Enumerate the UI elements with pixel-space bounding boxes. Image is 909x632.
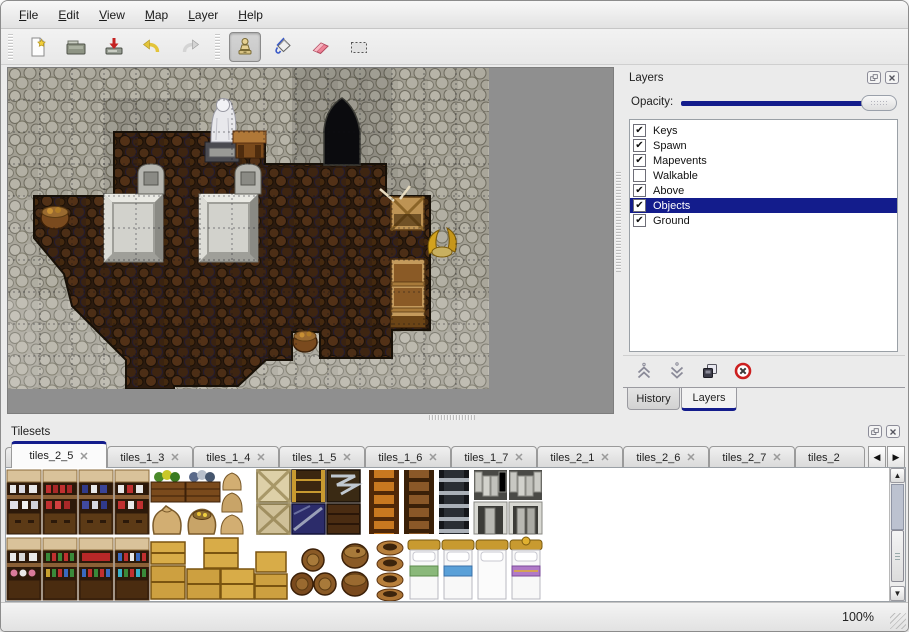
tile-shelf-red-bottles[interactable] [43, 470, 77, 534]
tileset-tab-tiles_1_6[interactable]: tiles_1_6 ✕ [365, 446, 451, 468]
layer-checkbox[interactable]: ✔ [633, 124, 646, 137]
app-window: File Edit View Map Layer Help [0, 0, 909, 632]
arrow-left-icon: ◀ [874, 452, 881, 463]
tile-ladder-orange[interactable] [369, 470, 399, 534]
tile-pot-stack[interactable] [377, 541, 403, 601]
layer-row-objects[interactable]: ✔ Objects [630, 198, 897, 213]
delete-layer-button[interactable] [731, 359, 755, 383]
tab-close-icon[interactable]: ✕ [514, 451, 523, 464]
tile-ladder-iron[interactable] [439, 470, 469, 534]
tab-label: tiles_1_4 [206, 452, 250, 464]
tileset-render [6, 468, 876, 601]
tile-crate-navy[interactable] [292, 504, 325, 534]
menu-view[interactable]: View [89, 3, 135, 27]
save-icon [102, 35, 126, 59]
tile-sack-open-gold[interactable] [188, 509, 215, 534]
tile-crate-dark[interactable] [327, 504, 360, 534]
layer-row-mapevents[interactable]: ✔ Mapevents [630, 153, 897, 168]
tile-crate-dark-gold[interactable] [292, 470, 325, 502]
tab-label: Layers [692, 392, 725, 404]
layer-name: Above [653, 185, 684, 197]
tileset-scrollbar[interactable]: ▲ ▼ [889, 468, 905, 601]
close-panel-button[interactable] [886, 425, 900, 438]
undo-arrow-icon [140, 35, 164, 59]
layer-row-above[interactable]: ✔ Above [630, 183, 897, 198]
layer-actions [623, 355, 905, 385]
basket-left [41, 207, 69, 230]
layer-checkbox[interactable]: ✔ [633, 154, 646, 167]
eraser-icon [309, 35, 333, 59]
float-icon [869, 73, 879, 83]
tile-sack-large[interactable] [153, 506, 181, 534]
menu-bar: File Edit View Map Layer Help [1, 1, 908, 29]
tab-scroll-left-button[interactable]: ◀ [868, 446, 886, 468]
status-bar: 100% [1, 602, 908, 631]
tile-bed-purple[interactable] [510, 537, 542, 599]
opacity-label: Opacity: [631, 96, 673, 108]
tile-bed-white[interactable] [476, 540, 508, 599]
move-layer-up-button[interactable] [632, 359, 656, 383]
tab-label: tiles_1_6 [378, 452, 422, 464]
splitter-grip [429, 415, 475, 420]
fill-tool-button[interactable] [267, 32, 299, 62]
tile-shelf-jugs[interactable] [115, 470, 149, 534]
layer-checkbox[interactable]: ✔ [633, 184, 646, 197]
tile-shelf-blue-jars[interactable] [79, 470, 113, 534]
tab-close-icon[interactable]: ✕ [772, 451, 781, 464]
selection-rect-icon [347, 35, 371, 59]
open-folder-icon [64, 35, 88, 59]
tile-planter-green[interactable] [151, 470, 185, 502]
zoom-level: 100% [842, 610, 874, 624]
tab-layers[interactable]: Layers [681, 388, 737, 411]
tile-crate-x-light-2[interactable] [257, 504, 290, 534]
tab-close-icon[interactable]: ✕ [686, 451, 695, 464]
tile-crates-yellow[interactable] [151, 538, 287, 599]
layer-row-spawn[interactable]: ✔ Spawn [630, 138, 897, 153]
tab-label: tiles_2_6 [636, 452, 680, 464]
tab-scroll-right-button[interactable]: ▶ [887, 446, 905, 468]
layer-row-ground[interactable]: ✔ Ground [630, 213, 897, 228]
tile-barrel-pile[interactable] [291, 549, 336, 595]
layer-checkbox[interactable]: ✔ [633, 214, 646, 227]
menu-help[interactable]: Help [228, 3, 273, 27]
tab-label: tiles_1_5 [292, 452, 336, 464]
layer-checkbox[interactable] [633, 169, 646, 182]
tile-bed-green[interactable] [408, 540, 440, 599]
new-file-icon [26, 35, 50, 59]
scroll-up-button[interactable]: ▲ [890, 468, 905, 483]
eraser-tool-button[interactable] [305, 32, 337, 62]
tileset-tab-tiles_2_1[interactable]: tiles_2_1 ✕ [537, 446, 623, 468]
redo-arrow-icon [178, 35, 202, 59]
tab-close-icon[interactable]: ✕ [342, 451, 351, 464]
layer-name: Ground [653, 215, 690, 227]
tileset-tab-tiles_1_5[interactable]: tiles_1_5 ✕ [279, 446, 365, 468]
layer-row-walkable[interactable]: Walkable [630, 168, 897, 183]
tile-barrels-stacked[interactable] [342, 544, 368, 596]
opacity-slider[interactable] [681, 93, 897, 113]
gravestone-right [235, 164, 261, 194]
layer-checkbox[interactable]: ✔ [633, 199, 646, 212]
tile-planter-blue[interactable] [186, 470, 220, 502]
copy-icon [700, 361, 720, 381]
tilesets-panel: Tilesets tiles_2_5 ✕ tiles_1_3 [5, 421, 906, 603]
horizontal-splitter[interactable] [5, 414, 906, 421]
tileset-tab-tiles_2_7[interactable]: tiles_2_7 ✕ [709, 446, 795, 468]
layers-panel-title: Layers [629, 72, 664, 84]
tileset-tab-tiles_2_6[interactable]: tiles_2_6 ✕ [623, 446, 709, 468]
tile-shelf-red-rows[interactable] [79, 538, 113, 600]
vertical-splitter[interactable] [614, 67, 623, 414]
layer-name: Walkable [653, 170, 698, 182]
tileset-tab-tiles_1_4[interactable]: tiles_1_4 ✕ [193, 446, 279, 468]
tile-shelf-green-red[interactable] [43, 538, 77, 600]
duplicate-layer-button[interactable] [698, 359, 722, 383]
tab-label: tiles_2 [808, 452, 840, 464]
tab-close-icon[interactable]: ✕ [428, 451, 437, 464]
close-icon [888, 427, 898, 437]
tab-label: tiles_2_1 [550, 452, 594, 464]
tileset-tab-tiles_2_5[interactable]: tiles_2_5 ✕ [11, 441, 107, 468]
tab-label: tiles_2_5 [29, 450, 73, 462]
layers-panel-titlebar: Layers [623, 67, 905, 88]
wooden-table [233, 131, 266, 158]
tab-close-icon[interactable]: ✕ [170, 451, 179, 464]
tilesets-panel-titlebar: Tilesets [5, 421, 906, 442]
tile-stone-arch-1[interactable] [474, 470, 507, 534]
close-icon [887, 73, 897, 83]
layer-name: Keys [653, 125, 677, 137]
menu-map[interactable]: Map [135, 3, 178, 27]
move-layer-down-button[interactable] [665, 359, 689, 383]
stamp-tool-button[interactable] [229, 32, 261, 62]
tile-ladder-brown[interactable] [404, 470, 434, 534]
toolbar [1, 29, 908, 65]
tile-stone-arch-2[interactable] [509, 470, 542, 534]
scrollbar-track[interactable] [891, 484, 904, 530]
tile-shelf-jars-2[interactable] [7, 538, 41, 600]
layers-panel: Layers Opacity: ✔ [623, 67, 905, 414]
tab-label: History [636, 393, 670, 405]
splitter-grip [616, 172, 621, 272]
map-view [7, 67, 614, 414]
scroll-down-button[interactable]: ▼ [890, 586, 905, 601]
float-panel-button[interactable] [868, 425, 882, 438]
arrow-right-icon: ▶ [893, 452, 900, 463]
float-panel-button[interactable] [867, 71, 881, 84]
tileset-tab-truncated[interactable]: tiles_2 [795, 446, 865, 468]
opacity-row: Opacity: [629, 93, 899, 113]
tile-shelf-mixed-bottles[interactable] [115, 538, 149, 600]
select-tool-button[interactable] [343, 32, 375, 62]
layer-checkbox[interactable]: ✔ [633, 139, 646, 152]
tileset-tab-tiles_1_7[interactable]: tiles_1_7 ✕ [451, 446, 537, 468]
tileset-tab-tiles_1_3[interactable]: tiles_1_3 ✕ [107, 446, 193, 468]
tab-close-icon[interactable]: ✕ [79, 450, 88, 463]
chevron-down-icon [667, 361, 687, 381]
tab-label: tiles_1_7 [464, 452, 508, 464]
redo-button[interactable] [174, 32, 206, 62]
menu-file[interactable]: File [9, 3, 48, 27]
basket-bottom [293, 331, 317, 352]
delete-icon [733, 361, 753, 381]
menu-layer[interactable]: Layer [178, 3, 228, 27]
map-canvas[interactable] [8, 68, 489, 389]
wooden-shelf [391, 259, 425, 327]
scrollbar-thumb[interactable] [891, 530, 904, 582]
undo-button[interactable] [136, 32, 168, 62]
toolbar-drag-handle[interactable] [8, 34, 13, 60]
float-icon [870, 427, 880, 437]
tileset-view[interactable]: ▲ ▼ [5, 467, 906, 602]
layer-list[interactable]: ✔ Keys ✔ Spawn ✔ Mapevents Walkable ✔ Ab… [629, 119, 898, 352]
resize-grip[interactable] [890, 613, 906, 629]
toolbar-drag-handle-2[interactable] [215, 34, 220, 60]
tab-history[interactable]: History [627, 388, 680, 410]
tab-close-icon[interactable]: ✕ [256, 451, 265, 464]
chevron-up-icon [634, 361, 654, 381]
tile-crate-x-light[interactable] [257, 470, 290, 502]
paint-bucket-icon [271, 35, 295, 59]
tileset-tab-bar: tiles_2_5 ✕ tiles_1_3 ✕ tiles_1_4 ✕ tile… [5, 441, 906, 468]
tile-sack-stack[interactable] [221, 473, 243, 534]
layer-name: Objects [653, 200, 690, 212]
new-map-button[interactable] [22, 32, 54, 62]
tab-close-icon[interactable]: ✕ [600, 451, 609, 464]
tile-bed-blue[interactable] [442, 540, 474, 599]
layer-row-keys[interactable]: ✔ Keys [630, 123, 897, 138]
layer-name: Spawn [653, 140, 687, 152]
close-panel-button[interactable] [885, 71, 899, 84]
tile-crate-iron-brace[interactable] [327, 470, 360, 502]
gravestone-left [138, 164, 164, 194]
tab-label: tiles_1_3 [120, 452, 164, 464]
menu-edit[interactable]: Edit [48, 3, 89, 27]
map-render [8, 68, 489, 389]
layer-name: Mapevents [653, 155, 707, 167]
open-map-button[interactable] [60, 32, 92, 62]
tilesets-panel-title: Tilesets [11, 426, 50, 438]
save-map-button[interactable] [98, 32, 130, 62]
dock-tab-bar: History Layers [623, 387, 905, 413]
opacity-slider-handle[interactable] [861, 95, 897, 111]
tile-shelf-dishes[interactable] [7, 470, 41, 534]
tab-label: tiles_2_7 [722, 452, 766, 464]
stamp-icon [233, 35, 257, 59]
